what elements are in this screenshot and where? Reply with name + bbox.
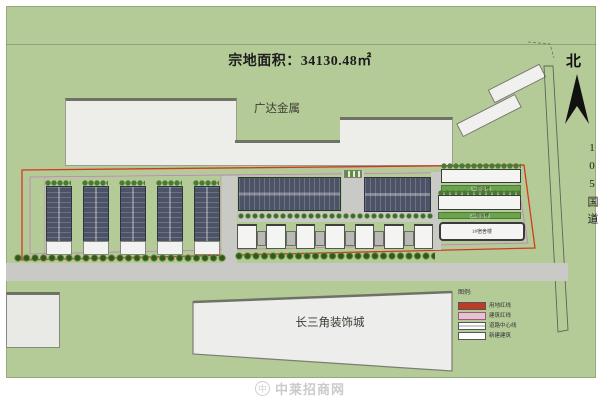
legend-label: 建筑红线 [489, 313, 511, 319]
highway-105-label: 105国道 [584, 142, 600, 230]
legend-swatch-road-centerline [458, 322, 486, 330]
parcel-area-title: 宗地面积：34130.48㎡ [0, 50, 600, 70]
north-label: 北 [566, 50, 581, 71]
dorm-building-1-label: 1#宿舍楼 [472, 229, 492, 234]
shop-unit [355, 224, 375, 249]
grid-line [44, 176, 45, 260]
workshop-roof [194, 186, 220, 243]
shop-row [237, 224, 433, 248]
workshop-base [120, 241, 146, 255]
legend-label: 道路中心线 [489, 323, 517, 329]
dorm-building-1: 1#宿舍楼 [439, 222, 525, 241]
legend: 图例: 用地红线 建筑红线 道路中心线 新建建筑 [458, 290, 550, 340]
lawn-strip-2-label: 2#宿舍楼 [470, 213, 490, 218]
shop-connector [257, 231, 267, 246]
legend-row: 道路中心线 [458, 321, 550, 330]
internal-road-vertical-left [222, 176, 237, 264]
workshop-vertical-2 [83, 186, 107, 253]
legend-swatch-parcel-red-line [458, 302, 486, 310]
watermark-logo-icon: 中 [255, 381, 270, 396]
workshop-roof [157, 186, 183, 243]
workshop-horizontal-a [238, 177, 341, 211]
main-road-south [6, 263, 568, 281]
shop-connector [404, 231, 414, 246]
shop-connector [315, 231, 325, 246]
neighbor-building-top-left-wing [65, 98, 237, 166]
legend-label: 用地红线 [489, 303, 511, 309]
shop-unit [384, 224, 404, 249]
workshop-horizontal-b [364, 177, 431, 212]
legend-swatch-building-red-line [458, 312, 486, 320]
shop-connector [286, 231, 296, 246]
shop-unit [266, 224, 286, 249]
watermark: 中 中莱招商网 [0, 379, 600, 398]
shop-connector [374, 231, 384, 246]
lawn-strip-2: 2#宿舍楼 [438, 212, 521, 219]
workshop-vertical-3 [120, 186, 144, 253]
tree-row-south-middle [235, 252, 435, 261]
grid-line [220, 174, 221, 258]
neighbor-bottom-label: 长三角装饰城 [255, 314, 405, 330]
site-plan-canvas: 宗地面积：34130.48㎡ 广达金属 北 105国道 [0, 0, 600, 400]
workshop-base [46, 241, 72, 255]
neighbor-building-top-right-wing [340, 117, 453, 166]
tree-row-internal-road [238, 213, 434, 220]
legend-row: 建筑红线 [458, 311, 550, 320]
neighbor-building-bottom-left [6, 292, 60, 348]
neighbor-top-label: 广达金属 [232, 100, 322, 116]
legend-title: 图例: [458, 290, 513, 296]
watermark-text: 中莱招商网 [275, 379, 345, 398]
legend-swatch-new-building [458, 332, 486, 340]
workshop-roof [83, 186, 109, 243]
workshop-vertical-4 [157, 186, 181, 253]
shop-unit [237, 224, 257, 249]
shop-unit [325, 224, 345, 249]
shop-connector [345, 231, 355, 246]
shop-unit [414, 224, 434, 249]
shop-unit [296, 224, 316, 249]
legend-label: 新建建筑 [489, 333, 511, 339]
workshop-vertical-5 [194, 186, 218, 253]
legend-row: 新建建筑 [458, 331, 550, 340]
north-boundary-line [6, 44, 596, 45]
workshop-vertical-1 [46, 186, 70, 253]
dorm-building-2 [438, 195, 521, 210]
workshop-base [157, 241, 183, 255]
workshop-roof [46, 186, 72, 243]
workshop-base [194, 241, 220, 255]
legend-row: 用地红线 [458, 301, 550, 310]
tree-row-south-left [14, 254, 227, 263]
workshop-base [83, 241, 109, 255]
parking-marks [344, 170, 362, 178]
neighbor-building-top-middle-wing [235, 140, 342, 166]
dorm-building-3 [441, 169, 521, 183]
workshop-roof [120, 186, 146, 243]
